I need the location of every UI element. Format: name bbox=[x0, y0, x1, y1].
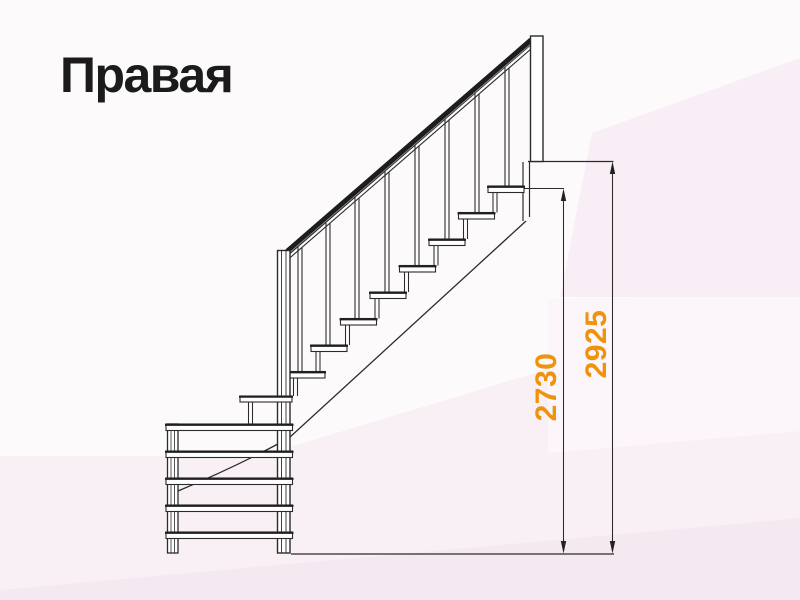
dimension-value-2925: 2925 bbox=[580, 274, 614, 414]
handrail bbox=[288, 41, 533, 260]
arrow-up-icon bbox=[561, 189, 566, 202]
winder-treads bbox=[165, 396, 294, 539]
dimension-value-2730: 2730 bbox=[530, 317, 564, 457]
arrow-down-icon bbox=[561, 541, 566, 554]
treads-straight-flight bbox=[287, 186, 525, 378]
upper-landing bbox=[523, 162, 614, 222]
arrow-down-icon bbox=[610, 541, 615, 554]
staircase-side-view-drawing bbox=[0, 0, 800, 600]
arrow-up-icon bbox=[610, 162, 615, 175]
top-newel-post bbox=[531, 36, 544, 162]
staircase-diagram-page: Правая bbox=[0, 0, 800, 600]
